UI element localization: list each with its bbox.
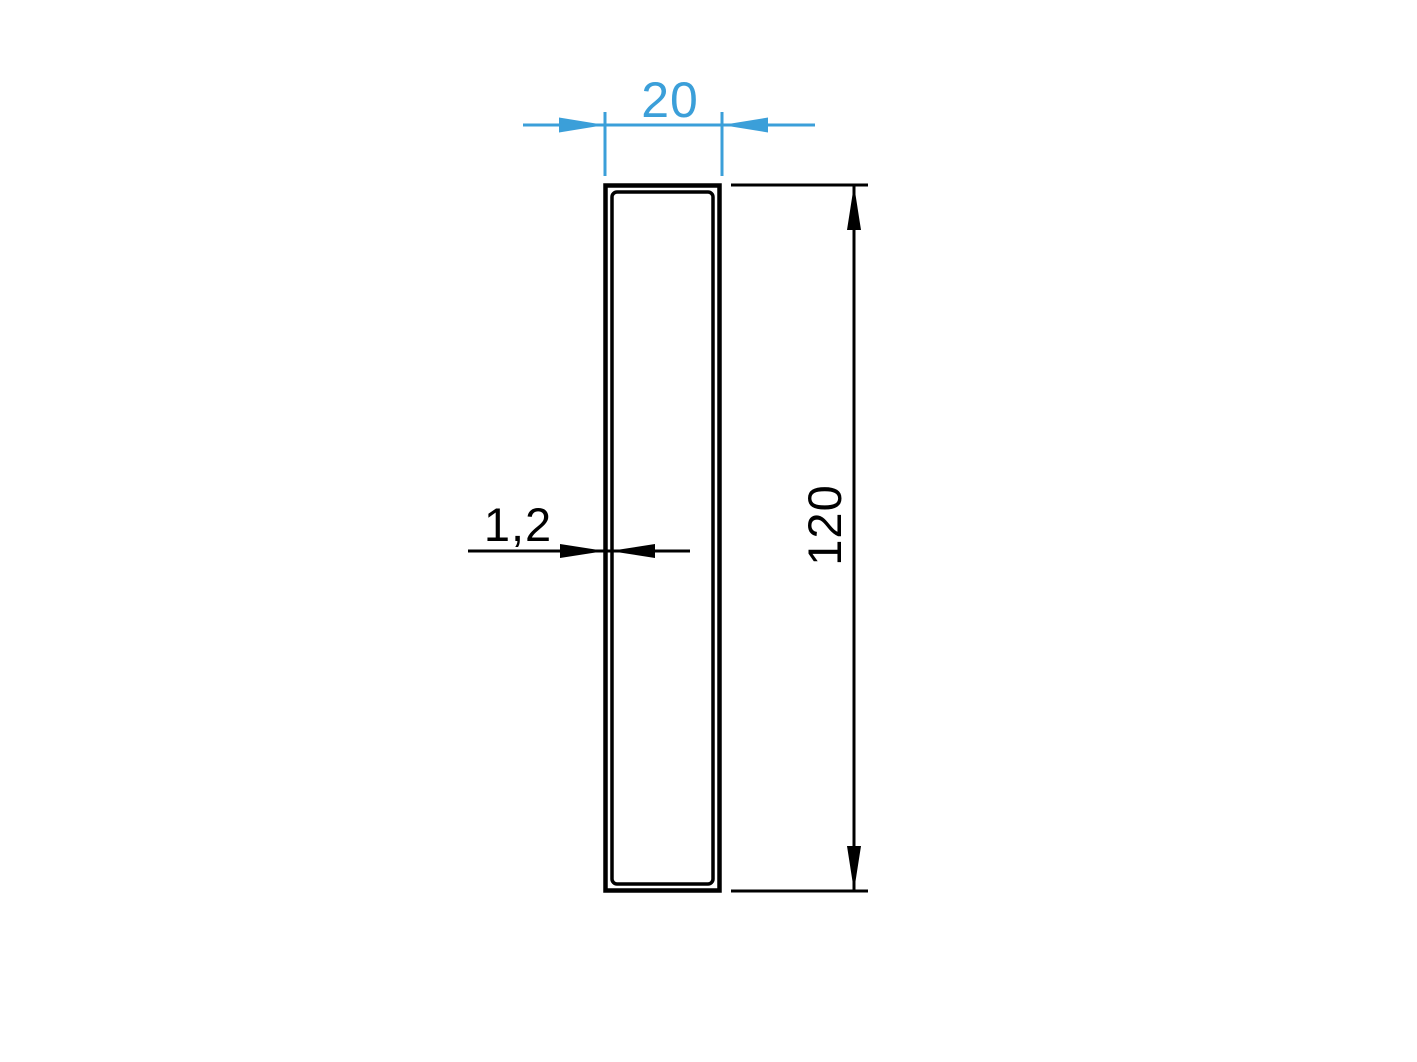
tube-profile [606,186,720,891]
width-dimension: 20 [523,72,815,176]
tube-cross-section-drawing: 20 120 1,2 [0,0,1417,1062]
wall-thickness-dimension-value: 1,2 [484,498,552,551]
wall-thickness-arrowhead-left-pointing [610,544,655,558]
technical-drawing-canvas: 20 120 1,2 [0,0,1417,1062]
width-arrowhead-left [559,118,605,133]
tube-inner-profile [612,192,713,884]
wall-thickness-dimension: 1,2 [468,498,690,558]
wall-thickness-arrowhead-right-pointing [560,544,605,558]
height-dimension: 120 [731,185,868,891]
tube-outer-profile [606,186,720,891]
height-arrowhead-bottom [847,846,861,891]
width-arrowhead-right [722,118,768,133]
height-dimension-value: 120 [798,484,851,565]
width-dimension-value: 20 [641,72,699,128]
height-arrowhead-top [847,185,861,230]
